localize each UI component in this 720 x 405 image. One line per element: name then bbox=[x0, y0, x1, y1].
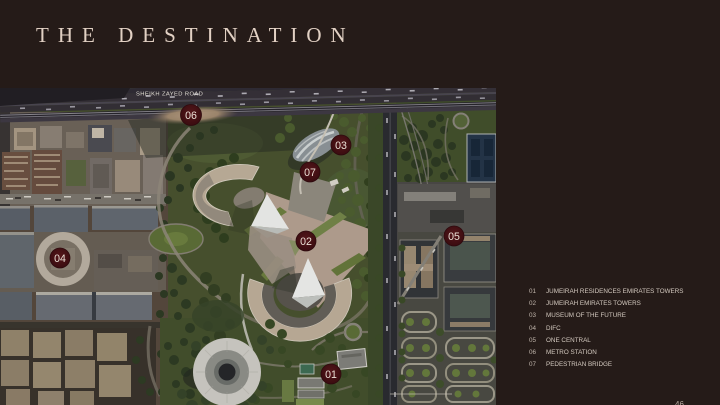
svg-text:06: 06 bbox=[185, 110, 197, 122]
svg-text:05: 05 bbox=[448, 231, 460, 243]
svg-text:07: 07 bbox=[304, 167, 316, 179]
svg-text:04: 04 bbox=[54, 253, 66, 265]
svg-text:01: 01 bbox=[325, 369, 337, 381]
svg-text:03: 03 bbox=[335, 140, 347, 152]
svg-text:02: 02 bbox=[300, 236, 312, 248]
